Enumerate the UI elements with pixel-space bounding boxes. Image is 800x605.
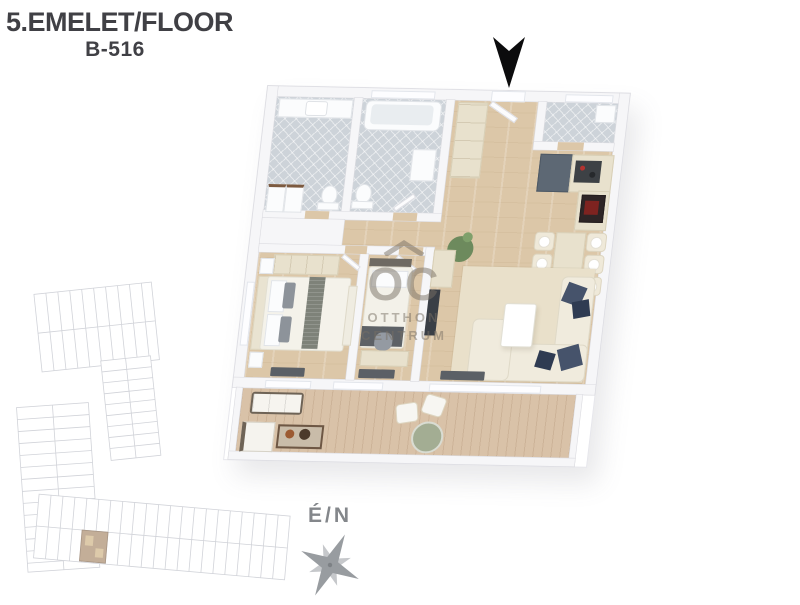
chair-seat	[538, 236, 551, 248]
watermark-initials: OC	[356, 261, 452, 307]
bath2-toilet-tank	[351, 201, 374, 209]
bath2-door-opening	[392, 213, 417, 221]
wall-shaft-block	[259, 218, 344, 246]
bathtub-basin	[370, 104, 434, 125]
watermark-roof-icon	[382, 240, 426, 256]
terrace-chair	[395, 401, 418, 424]
bath1-sink	[305, 101, 329, 116]
cooktop	[573, 160, 602, 182]
door-mat	[358, 369, 395, 379]
floor-title: 5.EMELET/FLOOR	[6, 8, 224, 36]
entrance-door-opening	[491, 91, 526, 103]
unit-number: B-516	[6, 38, 224, 62]
chair-seat	[590, 237, 603, 249]
storage-door-opening	[557, 142, 584, 151]
watermark: OC OTTHON CENTRUM	[356, 240, 452, 343]
oven-door	[584, 201, 600, 215]
floor-plan-page: 5.EMELET/FLOOR B-516	[0, 0, 800, 600]
compass-rose-icon	[297, 530, 363, 600]
highlighted-unit	[79, 530, 108, 563]
desk	[359, 350, 409, 367]
compass: É/N	[294, 504, 366, 605]
dining-chair	[585, 233, 607, 252]
sofa-pillow	[572, 299, 591, 319]
watermark-line2: CENTRUM	[356, 328, 452, 343]
site-plan-right-wing	[101, 356, 161, 461]
bath1-toilet-tank	[317, 202, 340, 210]
window-storage	[565, 94, 614, 103]
site-plan	[2, 270, 302, 595]
window-bath2	[371, 90, 436, 99]
dryer-machine	[283, 184, 304, 212]
watermark-line1: OTTHON	[356, 310, 452, 325]
door-mat	[440, 371, 485, 381]
balcony-door-bedroom2	[333, 381, 384, 390]
bath2-vanity	[409, 149, 437, 181]
compass-label: É/N	[294, 504, 366, 528]
title-block: 5.EMELET/FLOOR B-516	[6, 8, 224, 62]
storage-shelf	[594, 105, 616, 123]
bath1-door-opening	[305, 211, 330, 219]
north-arrow-icon	[492, 36, 526, 88]
coffee-table	[500, 303, 537, 348]
dining-chair	[533, 232, 555, 251]
